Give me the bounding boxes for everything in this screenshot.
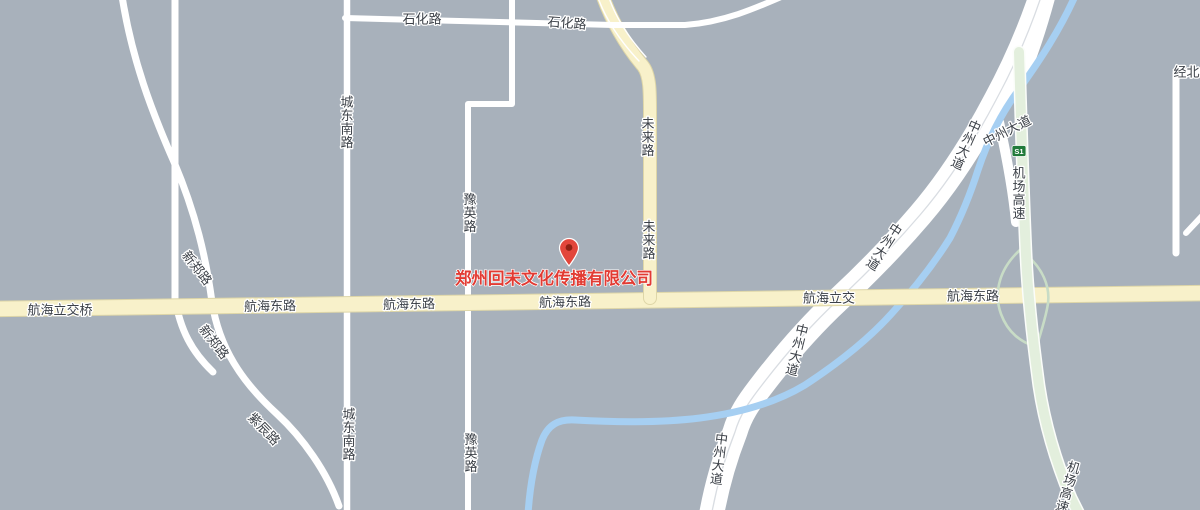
road-label: 城东南路 — [340, 94, 353, 150]
poi-label[interactable]: 郑州回未文化传播有限公司 — [455, 268, 653, 288]
road-label: 航海立交 — [803, 291, 855, 306]
road-label: 航海东路 — [539, 294, 591, 310]
road-label: 城东南路 — [342, 406, 355, 462]
road-label: 豫英路 — [463, 192, 476, 234]
road-label: 未来路 — [642, 219, 655, 261]
s1-shield-text: S1 — [1014, 147, 1023, 156]
road-label: 航海东路 — [947, 289, 999, 304]
road-label: 未来路 — [641, 116, 654, 158]
map-canvas[interactable]: 石化路石化路经北二新郑路新郑路紫辰路航海立交桥航海东路航海东路航海东路航海立交航… — [0, 0, 1200, 510]
road-label: 航海东路 — [383, 296, 435, 312]
road-label: 机场高速 — [1012, 165, 1025, 221]
road-label: 航海东路 — [244, 298, 296, 314]
highway-shield: S1 — [1012, 146, 1026, 157]
road-label: 航海立交桥 — [27, 303, 92, 318]
road-label: 石化路 — [402, 12, 441, 27]
road-label: 豫英路 — [464, 432, 477, 474]
road-label: 经北二 — [1173, 65, 1200, 80]
map-svg[interactable]: 石化路石化路经北二新郑路新郑路紫辰路航海立交桥航海东路航海东路航海东路航海立交航… — [0, 0, 1200, 510]
road-label: 石化路 — [547, 14, 587, 32]
